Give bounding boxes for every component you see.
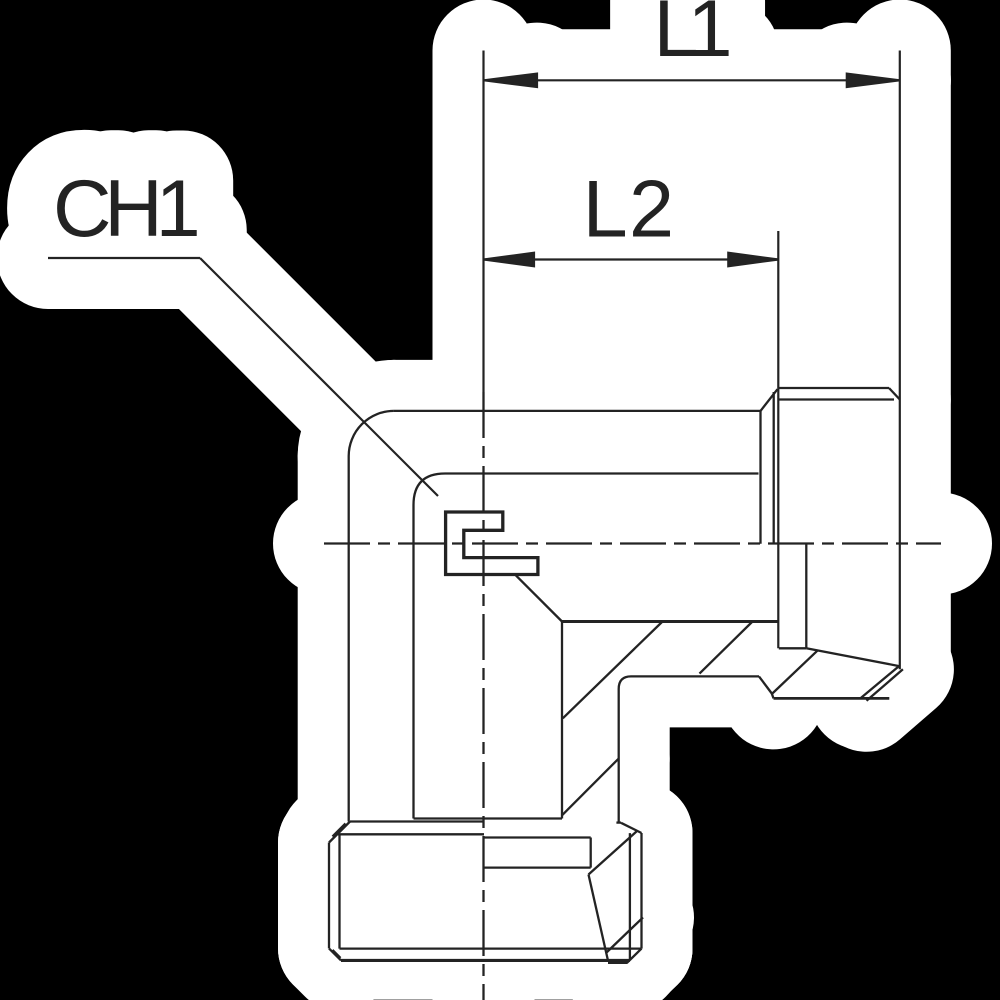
svg-text:L1: L1 bbox=[654, 0, 730, 74]
svg-text:CH1: CH1 bbox=[53, 164, 198, 254]
svg-text:L2: L2 bbox=[583, 165, 676, 255]
